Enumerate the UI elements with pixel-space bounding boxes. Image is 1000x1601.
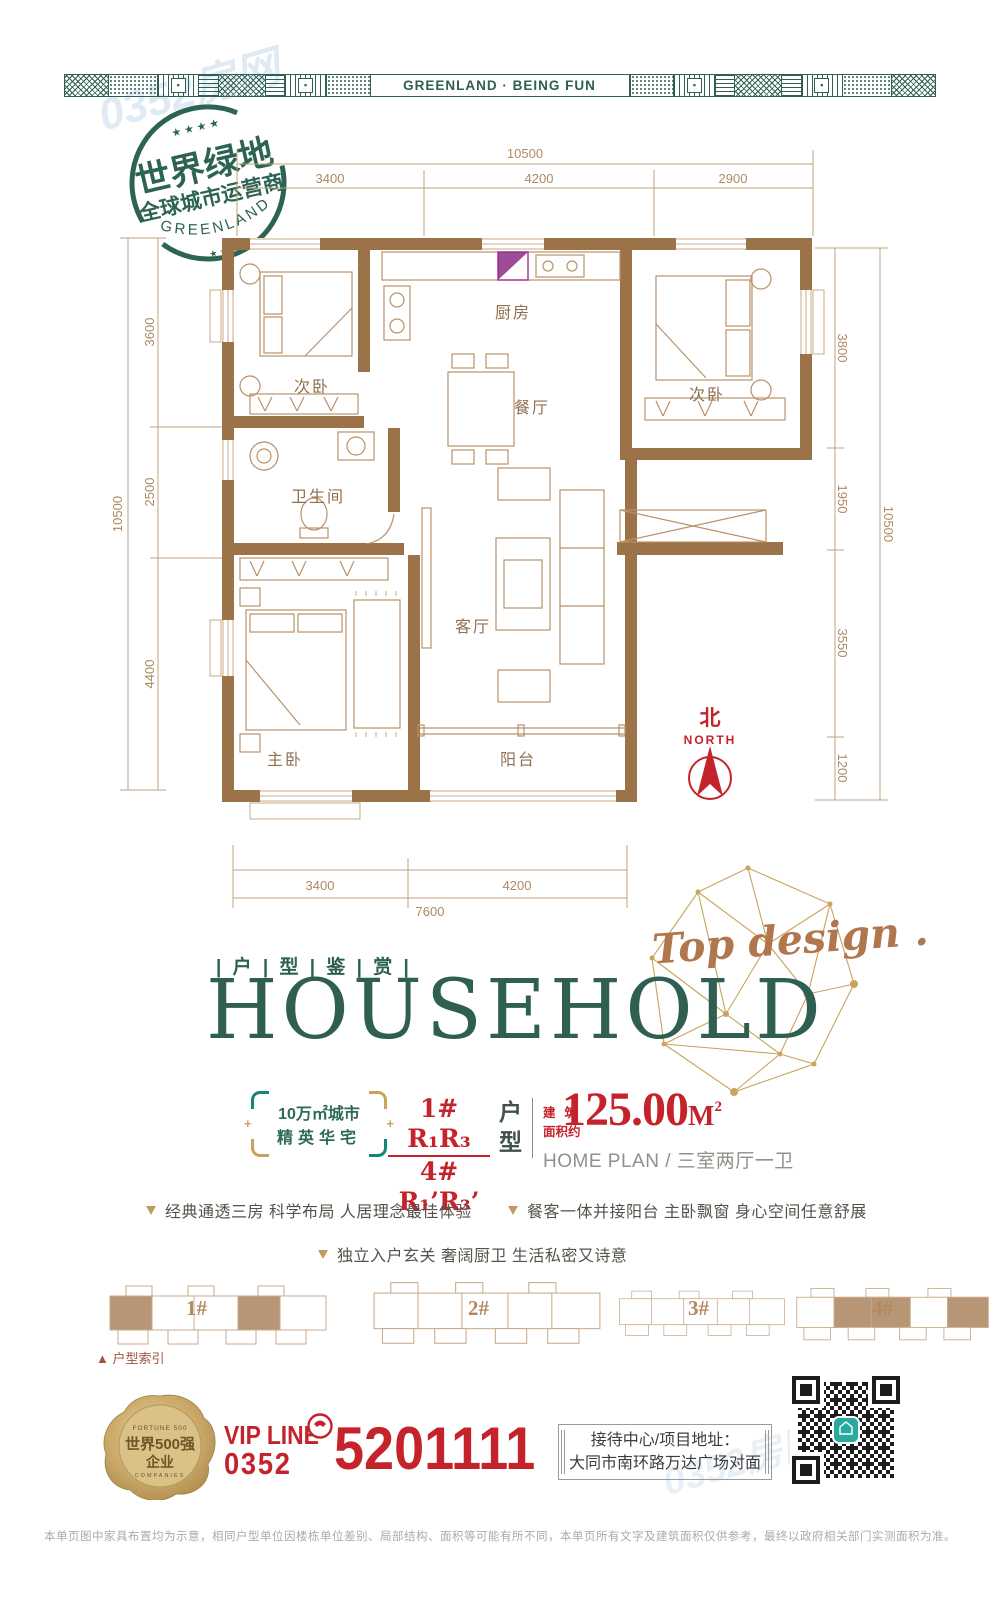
badge-corner (369, 1139, 387, 1157)
feature-item: 经典通透三房 科学布局 人居理念最佳体验 (146, 1198, 472, 1222)
svg-text:10500: 10500 (507, 146, 543, 161)
bullet-arrow-icon (146, 1206, 156, 1215)
svg-text:3400: 3400 (306, 878, 335, 893)
band-pattern-lattice (891, 75, 935, 96)
svg-text:4400: 4400 (142, 660, 157, 689)
north-arrow: 北 NORTH (684, 707, 737, 799)
band-pattern-lines (198, 75, 218, 96)
svg-text:世界500强: 世界500强 (125, 1435, 195, 1453)
dining-table (448, 354, 514, 464)
room-label-living: 客厅 (455, 618, 491, 636)
svg-text:4200: 4200 (525, 171, 554, 186)
entry-hatch (620, 510, 766, 542)
master-furniture (240, 558, 400, 752)
svg-text:2500: 2500 (142, 478, 157, 507)
svg-text:4200: 4200 (503, 878, 532, 893)
address-box-bar (765, 1430, 766, 1474)
band-pattern-motif (673, 75, 714, 96)
cluster-label-1: 1# (186, 1296, 207, 1321)
vip-area-code: 0352 (224, 1448, 319, 1479)
address-box-bar (561, 1430, 562, 1474)
dims-bottom: 3400 4200 7600 (233, 845, 627, 919)
vip-line-block: VIP LINE 0352 (224, 1422, 319, 1479)
room-label-kitchen: 厨房 (495, 304, 531, 322)
band-pattern-lattice (65, 75, 108, 96)
svg-text:1200: 1200 (835, 754, 850, 783)
section-title: HOUSEHOLD (206, 968, 825, 1054)
dims-top: 10500 3400 4200 2900 (237, 146, 813, 236)
area-value: 125.00M2 (562, 1082, 722, 1137)
room-label-dining: 餐厅 (514, 399, 550, 417)
feature-text: 经典通透三房 科学布局 人居理念最佳体验 (165, 1198, 472, 1222)
room-label-balcony: 阳台 (500, 751, 536, 769)
room-label-bedroom-b: 次卧 (689, 386, 725, 404)
index-caption: ▲ 户型索引 (96, 1348, 164, 1367)
band-pattern-dots (326, 75, 370, 96)
phone-number: 5201111 (334, 1414, 535, 1483)
svg-text:NORTH: NORTH (684, 733, 737, 747)
unit-row-1: 1# R₁R₃ (388, 1094, 490, 1157)
dims-right: 3800 1950 3550 1200 10500 (815, 248, 896, 800)
feature-text: 餐客一体并接阳台 主卧飘窗 身心空间任意舒展 (527, 1198, 867, 1222)
address-box: 接待中心/项目地址： 大同市南环路万达广场对面 (558, 1424, 772, 1480)
svg-text:7600: 7600 (416, 904, 445, 919)
top-border-band: GREENLAND · BEING FUN (64, 74, 936, 97)
band-pattern-lines (715, 75, 735, 96)
svg-text:3800: 3800 (835, 334, 850, 363)
floor-plan: 次卧 厨房 餐厅 次卧 卫生间 客厅 主卧 阳台 北 NORTH 10500 3… (100, 140, 900, 950)
band-pattern-motif (284, 75, 325, 96)
spec-divider (532, 1098, 533, 1158)
stamp-stars-top: ★ ★ ★ ★ (170, 117, 220, 140)
band-brand-label: GREENLAND · BEING FUN (370, 75, 630, 96)
phone-icon (306, 1412, 334, 1440)
svg-text:10500: 10500 (110, 496, 125, 532)
address-text: 大同市南环路万达广场对面 (569, 1452, 761, 1475)
band-pattern-lines (781, 75, 801, 96)
band-pattern-dots (842, 75, 891, 96)
walls (222, 238, 812, 802)
svg-text:2900: 2900 (719, 171, 748, 186)
badge-corner (369, 1091, 387, 1109)
feature-item: 独立入户玄关 奢阔厨卫 生活私密又诗意 (318, 1242, 627, 1266)
bathroom-fixtures (250, 432, 394, 544)
flyer-page: 0352房网 0352房网 GREENLAND · BEING FUN ★ ★ … (0, 0, 1000, 1601)
dims-left: 10500 3600 2500 4400 (110, 238, 222, 790)
band-pattern-dots (630, 75, 674, 96)
vip-line-label: VIP LINE (224, 1422, 319, 1448)
band-pattern-lattice (218, 75, 265, 96)
feature-item: 餐客一体并接阳台 主卧飘窗 身心空间任意舒展 (508, 1198, 867, 1222)
disclaimer-text: 本单页图中家具布置均为示意，相同户型单位因楼栋单位差别、局部结构、面积等可能有所… (0, 1528, 1000, 1544)
home-plan-subtitle: HOME PLAN / 三室两厅一卫 (543, 1146, 794, 1173)
cluster-label-2: 2# (468, 1296, 489, 1321)
balcony-divider (418, 725, 625, 736)
room-label-bedroom-a: 次卧 (294, 378, 330, 396)
address-box-bar (768, 1430, 769, 1474)
svg-text:企业: 企业 (145, 1454, 174, 1470)
room-label-bath: 卫生间 (291, 488, 345, 506)
svg-text:1950: 1950 (835, 485, 850, 514)
qr-code (790, 1374, 902, 1486)
svg-text:3600: 3600 (142, 318, 157, 347)
badge-corner (251, 1091, 269, 1109)
badge-plus-icon: + (244, 1116, 252, 1131)
feature-text: 独立入户玄关 奢阔厨卫 生活私密又诗意 (337, 1242, 627, 1266)
room-label-master: 主卧 (267, 751, 303, 769)
svg-text:北: 北 (700, 707, 721, 730)
building-cluster-1 (108, 1284, 328, 1348)
fortune500-seal: FORTUNE 500 世界500强 企业 COMPANIES (100, 1392, 220, 1500)
svg-text:3400: 3400 (316, 171, 345, 186)
address-box-bar (564, 1430, 565, 1474)
cluster-label-4: 4# (872, 1296, 893, 1321)
svg-text:3550: 3550 (835, 629, 850, 658)
bullet-arrow-icon (508, 1206, 518, 1215)
svg-text:10500: 10500 (881, 506, 896, 542)
badge-line2: 精英华宅 (277, 1124, 361, 1148)
living-furniture (422, 468, 604, 702)
bullet-arrow-icon (318, 1250, 328, 1259)
band-pattern-motif (157, 75, 198, 96)
band-pattern-motif (801, 75, 842, 96)
cluster-label-3: 3# (688, 1296, 709, 1321)
band-pattern-lines (265, 75, 285, 96)
badge-line1: 10万㎡城市 (278, 1100, 360, 1124)
qr-center-logo (833, 1417, 859, 1443)
badge-corner (251, 1139, 269, 1157)
svg-text:FORTUNE 500: FORTUNE 500 (133, 1425, 188, 1432)
band-pattern-lattice (734, 75, 781, 96)
city-badge: + + 10万㎡城市 精英华宅 (258, 1096, 380, 1152)
address-title: 接待中心/项目地址： (591, 1429, 739, 1452)
band-pattern-dots (108, 75, 157, 96)
kitchen-fixtures (382, 252, 620, 340)
type-label-vertical: 户 型 (499, 1098, 522, 1158)
svg-text:COMPANIES: COMPANIES (135, 1473, 186, 1479)
